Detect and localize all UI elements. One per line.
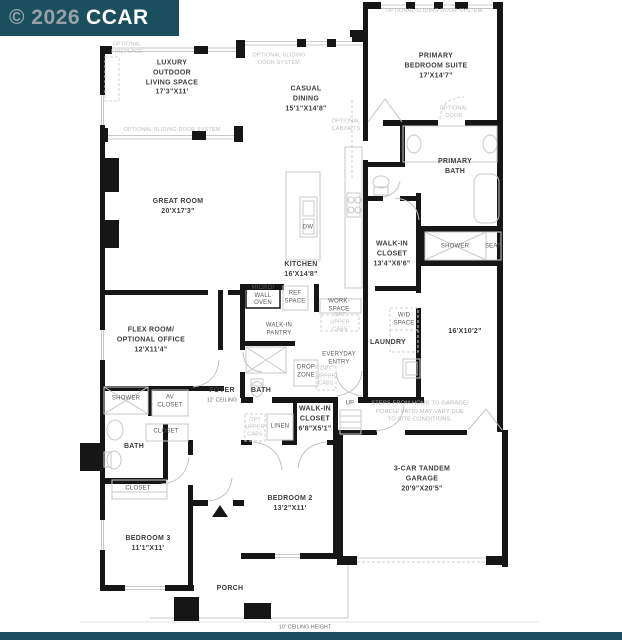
- label-optional-door: OPTIONAL DOOR: [440, 106, 469, 120]
- room-label-primary-walk-in-closet: WALK-IN CLOSET 13'4"X6'6": [373, 239, 410, 268]
- watermark-year: © 2026: [9, 6, 80, 30]
- label-optional-sliding-door-1: OPTIONAL SLIDING DOOR SYSTEM: [252, 53, 305, 67]
- room-label-bedroom-3: BEDROOM 3 11'1"X11': [125, 534, 170, 554]
- room-label-flex-room: FLEX ROOM/ OPTIONAL OFFICE 12'X11'4": [117, 325, 185, 354]
- entry-direction-marker: [212, 505, 228, 517]
- sink: [107, 420, 123, 440]
- room-label-porch: PORCH: [217, 584, 244, 594]
- label-seat: SEAT: [485, 243, 501, 251]
- room-label-great-room: GREAT ROOM 20'X17'3": [153, 197, 204, 217]
- label-hall-closet: CLOSET: [153, 428, 178, 436]
- toilet: [107, 451, 121, 469]
- label-optional-cabinets: OPTIONAL CABINETS: [332, 119, 361, 133]
- floorplan-page: LUXURY OUTDOOR LIVING SPACE 17'3"X11' CA…: [0, 0, 622, 640]
- bathtub: [474, 174, 499, 223]
- room-label-foyer: FOYER: [209, 386, 235, 396]
- label-walk-in-pantry: WALK-IN PANTRY: [266, 323, 292, 338]
- footer-brand-bar: [0, 632, 622, 640]
- room-label-bedroom-2: BEDROOM 2 13'2"X11': [267, 494, 312, 514]
- label-drop-zone: DROP ZONE: [297, 365, 315, 380]
- label-opt-upper-cabs-3: OPT UPPER CABS: [245, 417, 265, 438]
- label-wd-space: W/D SPACE: [394, 313, 415, 328]
- label-ceiling-height: 10' CEILING HEIGHT: [279, 624, 331, 631]
- label-work-space: WORK- SPACE: [328, 299, 350, 314]
- label-opt-upper-cabs-2: OPT UPPER CABS: [316, 366, 336, 387]
- room-label-kitchen: KITCHEN 16'X14'8": [284, 260, 317, 280]
- label-stairs-up: UP: [346, 400, 355, 408]
- room-label-left-bath: BATH: [124, 442, 144, 452]
- watermark-banner: © 2026 CCAR: [0, 0, 179, 36]
- label-everyday-entry: EVERYDAY ENTRY: [322, 352, 356, 367]
- room-label-garage: 3-CAR TANDEM GARAGE 20'9"X20'5": [394, 464, 450, 493]
- foyer-ceiling-note: 12' CEILING: [207, 397, 237, 404]
- label-primary-shower: SHOWER: [441, 243, 469, 251]
- optional-fireplace-box: [105, 57, 119, 101]
- room-label-primary-bath: PRIMARY BATH: [438, 157, 472, 177]
- room-label-primary-bedroom: PRIMARY BEDROOM SUITE 17'X14'7": [404, 51, 467, 80]
- label-micro-wall-oven: MICRO/ WALL OVEN: [252, 285, 275, 308]
- room-label-walk-in-closet-2: WALK-IN CLOSET 6'8"X5'1": [299, 404, 332, 433]
- label-optional-sliding-door-3: OPTIONAL SLIDING DOOR SYSTEM: [124, 127, 221, 134]
- room-label-casual-dining: CASUAL DINING 15'1"X14'8": [285, 84, 326, 113]
- room-label-bonus-space: 16'X10'2": [448, 327, 481, 337]
- room-label-laundry: LAUNDRY: [370, 338, 406, 348]
- label-ref-space: REF SPACE: [285, 291, 306, 306]
- label-steps-disclaimer: STEPS FROM HOME TO GARAGE/ PORCH/ PATIO …: [371, 400, 469, 425]
- label-opt-upper-cabs-1: OPT UPPER CABS: [330, 312, 350, 333]
- room-label-center-bath: BATH: [251, 386, 271, 396]
- room-label-luxury-outdoor: LUXURY OUTDOOR LIVING SPACE 17'3"X11': [146, 58, 198, 97]
- label-bedroom3-closet: CLOSET: [125, 485, 150, 493]
- watermark-brand: CCAR: [86, 6, 149, 30]
- label-av-closet: AV CLOSET: [157, 395, 182, 410]
- label-dishwasher: DW: [303, 224, 313, 232]
- label-optional-fireplace: OPTIONAL FIREPLACE: [111, 42, 143, 56]
- label-linen: LINEN: [271, 423, 290, 431]
- label-optional-sliding-door-2: OPTIONAL SLIDING DOOR SYSTEM: [386, 8, 483, 15]
- label-left-shower: SHOWER: [112, 395, 140, 403]
- toilet: [373, 176, 389, 188]
